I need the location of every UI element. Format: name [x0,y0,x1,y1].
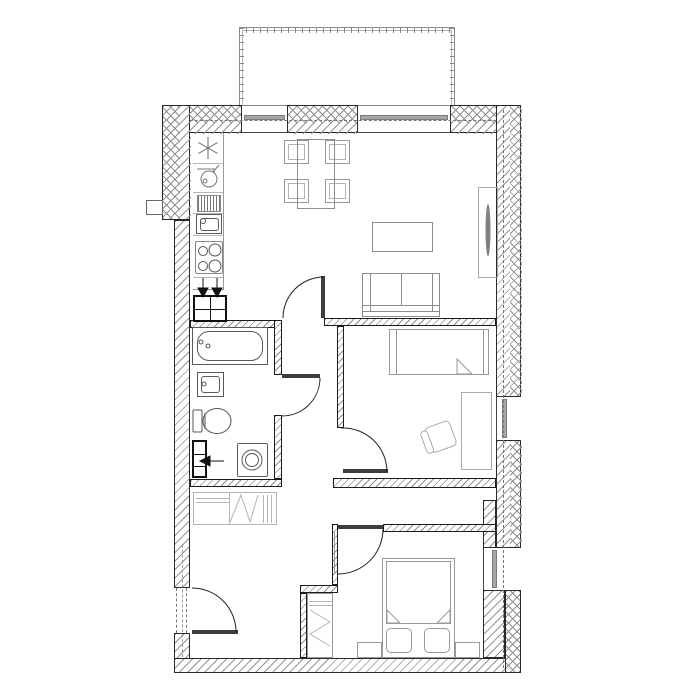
exterior-stub-left [146,200,163,215]
pillow-left [386,628,412,653]
balcony-railing-posts-top [239,27,455,33]
dining-table [297,139,335,209]
window-right-2 [483,548,521,590]
sofa [362,273,440,317]
nightstand-right [455,642,480,658]
wall-bathroom-bottom [190,479,282,487]
tv-unit [478,187,498,278]
desk-chair [419,420,457,455]
door-arc-bedroom-middle [341,428,387,472]
exterior-wall-right-lower-outer [505,590,521,673]
bed-single [389,329,489,375]
wall-bedroom-middle-left [337,326,344,428]
wall-bedroom-bottom-top [383,524,496,532]
exterior-wall-bottom [174,658,521,673]
washing-machine [237,443,268,477]
wall-bedroom-bottom-step [300,585,338,593]
exterior-wall-right-middle [496,440,521,548]
bedroom-wardrobe [307,593,333,658]
floor-plan [0,0,700,700]
door-leaf-living-room [321,276,325,318]
plumbing-shaft-bathroom [192,440,207,478]
entry-door-opening [172,588,190,633]
bathtub [192,327,268,365]
wall-axis-top [170,120,516,121]
window-right-2-glazing [492,550,497,588]
wall-axis-right [503,110,504,668]
exterior-wall-right-upper [496,105,521,397]
balcony-railing-posts-right [450,27,455,106]
ventilation-shaft-kitchen [193,295,227,322]
wall-bathroom-right-lower [274,415,282,479]
bed-double-blanket [386,561,451,624]
wall-living-bottom [324,318,496,326]
entry-opening-jamb-2 [186,588,187,633]
wall-bedroom-bottom-left-lower [300,593,307,658]
wall-axis-entry [182,545,183,657]
window-right-1 [496,397,521,440]
nightstand-left [357,642,382,658]
window-top-1 [242,105,287,133]
desk [461,392,492,470]
door-leaf-bedroom-bottom-open [334,532,335,574]
balcony-railing-posts-left [239,27,244,106]
wall-bedroom-bottom-left-upper [332,524,338,585]
kitchen-sink [196,214,222,234]
door-arc-bedroom-bottom [338,529,383,574]
exterior-wall-right-lower [483,590,505,658]
washbasin [197,372,224,397]
cooktop [195,241,223,274]
toilet [193,409,231,434]
dish-drainer [197,195,221,212]
door-arc-living-room [283,277,324,318]
door-leaf-bedroom-bottom [338,525,383,529]
door-leaf-bedroom-middle [343,469,388,473]
entry-opening-jamb-1 [176,588,177,633]
hallway-wardrobe [193,492,277,525]
wall-bedroom-middle-bottom [333,478,496,488]
window-top-2 [358,105,450,133]
door-arc-entry [192,588,236,632]
door-leaf-bathroom [282,374,320,378]
pillow-right [424,628,450,653]
wall-bathroom-right-upper [274,320,282,375]
exterior-wall-top-pier [287,105,358,133]
balcony-railing [239,27,455,106]
coffee-table [372,222,433,252]
exterior-wall-left-middle [174,220,190,588]
door-leaf-entry [192,630,238,634]
door-arc-bathroom [282,378,320,416]
exterior-wall-left-upper [162,105,190,220]
